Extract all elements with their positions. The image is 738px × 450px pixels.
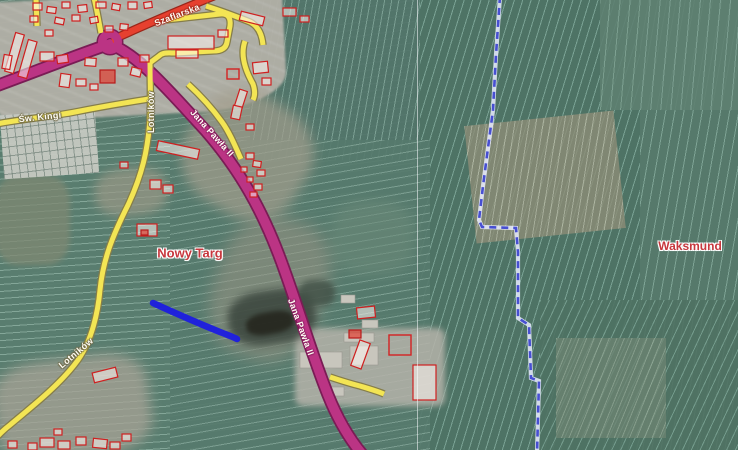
road-label: Św. Kingi (18, 110, 62, 124)
place-label-nowy-targ: Nowy Targ (157, 246, 223, 261)
road-label: Jana Pawła II (286, 297, 316, 357)
label-layer: SzaflarskaŚw. KingiLotnikówLotnikówJana … (0, 0, 738, 450)
road-label: Jana Pawła II (188, 107, 236, 158)
map-canvas[interactable]: SzaflarskaŚw. KingiLotnikówLotnikówJana … (0, 0, 738, 450)
road-label: Lotników (146, 91, 156, 133)
road-label: Szaflarska (153, 2, 201, 28)
road-label: Lotników (57, 336, 96, 371)
place-label-waksmund: Waksmund (658, 239, 722, 253)
